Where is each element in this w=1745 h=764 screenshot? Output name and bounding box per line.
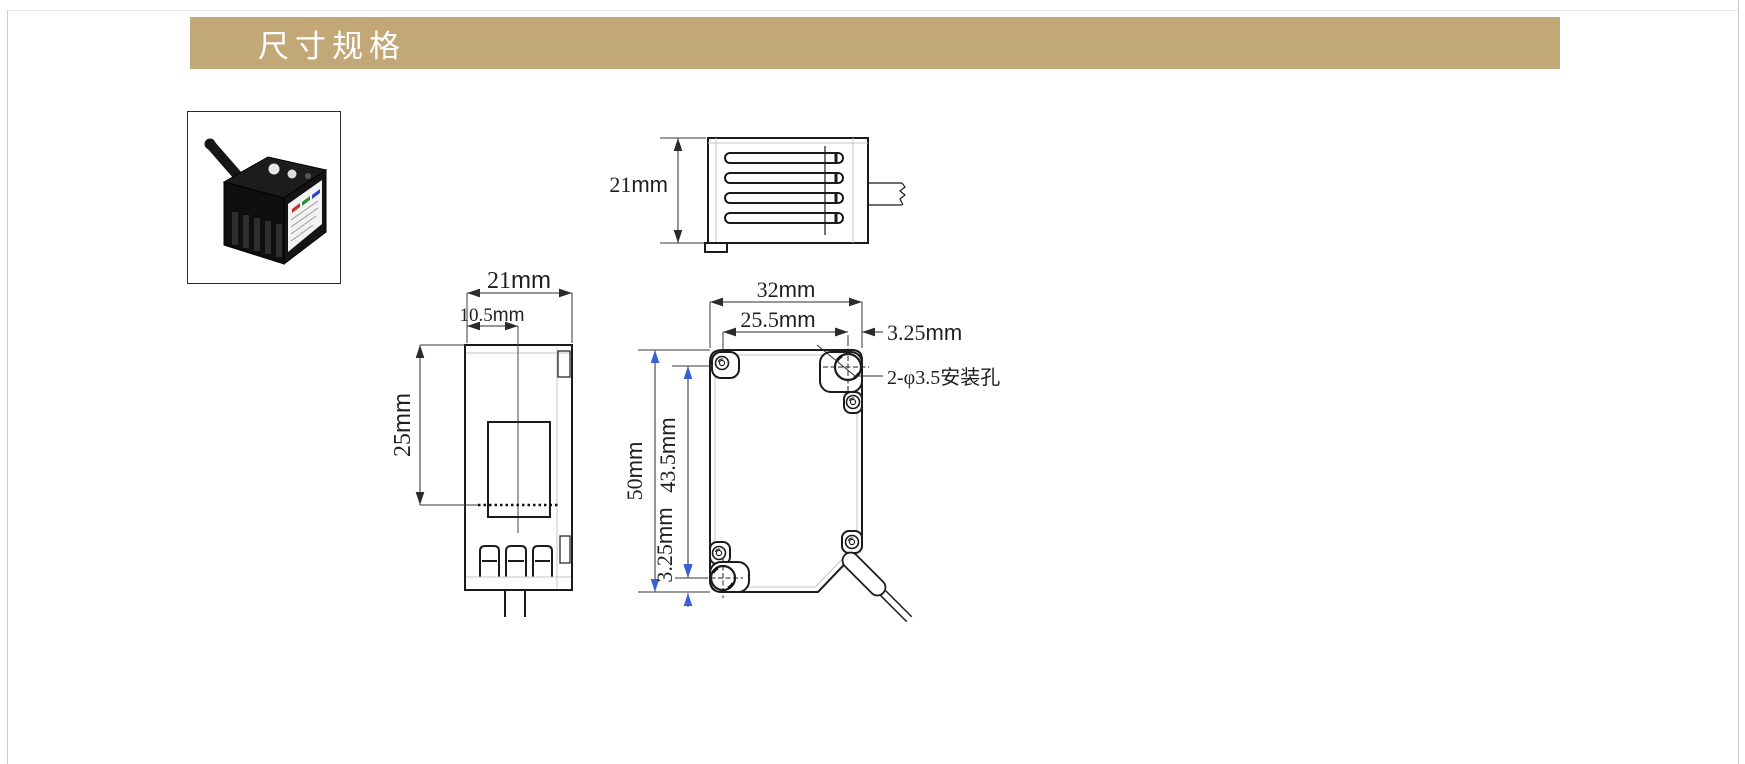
front-view-cable bbox=[505, 590, 525, 617]
top-view-dim-21mm: 21mm bbox=[609, 138, 706, 243]
dim-label-hole-span-25-5mm: 25.5mm bbox=[740, 307, 815, 332]
dim-label-height-21mm: 21mm bbox=[609, 172, 668, 197]
top-view-cable bbox=[868, 183, 905, 205]
sensor-cable bbox=[205, 139, 239, 177]
sensor-top-button bbox=[269, 164, 280, 175]
dim-label-height-50mm: 50mm bbox=[622, 442, 647, 501]
side-view-dim-25-5mm: 25.5mm bbox=[723, 307, 848, 350]
product-photo-box bbox=[187, 111, 341, 284]
dim-label-hole-offset-bottom-3-25mm: 3.25mm bbox=[652, 507, 677, 582]
side-view-dim-3-25mm-top: 3.25mm bbox=[833, 320, 962, 345]
top-view-body bbox=[705, 138, 905, 252]
dim-label-width-32mm: 32mm bbox=[757, 277, 816, 302]
section-title: 尺寸规格 bbox=[258, 21, 406, 66]
dim-label-beam-center-25mm: 25mm bbox=[389, 393, 416, 457]
side-view-drawing: 32mm 25.5mm 3.25mm 2-φ3.5安装孔 50mm bbox=[565, 245, 1045, 645]
screw-bottom-right bbox=[846, 536, 859, 549]
screw-top-left bbox=[716, 357, 729, 370]
screw-top-right bbox=[847, 396, 860, 409]
datasheet-page: 尺寸规格 bbox=[0, 0, 1745, 764]
dim-label-hole-span-43-5mm: 43.5mm bbox=[655, 417, 680, 492]
screw-bottom-left bbox=[713, 547, 726, 560]
sensor-top-button bbox=[288, 170, 297, 179]
dim-label-hole-offset-3-25mm: 3.25mm bbox=[887, 320, 962, 345]
product-photo bbox=[188, 112, 340, 283]
side-view-cable-gland bbox=[839, 549, 915, 625]
front-view-body bbox=[465, 326, 572, 617]
front-view-lens-window bbox=[488, 422, 550, 517]
dim-label-half-width-10-5mm: 10.5mm bbox=[460, 305, 525, 326]
section-header-bar: 尺寸规格 bbox=[190, 17, 1560, 69]
sensor-body bbox=[224, 157, 326, 264]
page-top-border bbox=[8, 10, 1738, 11]
front-view-bottom-slots bbox=[480, 546, 552, 577]
front-view-dim-10-5mm: 10.5mm bbox=[460, 305, 525, 326]
top-view-drawing: 21mm bbox=[540, 112, 920, 262]
dim-label-width-21mm: 21mm bbox=[487, 267, 551, 294]
page-left-border bbox=[7, 10, 8, 764]
page-right-border bbox=[1738, 0, 1739, 764]
mounting-hole-note-label: 2-φ3.5安装孔 bbox=[887, 366, 1000, 389]
side-view-body bbox=[703, 341, 915, 625]
